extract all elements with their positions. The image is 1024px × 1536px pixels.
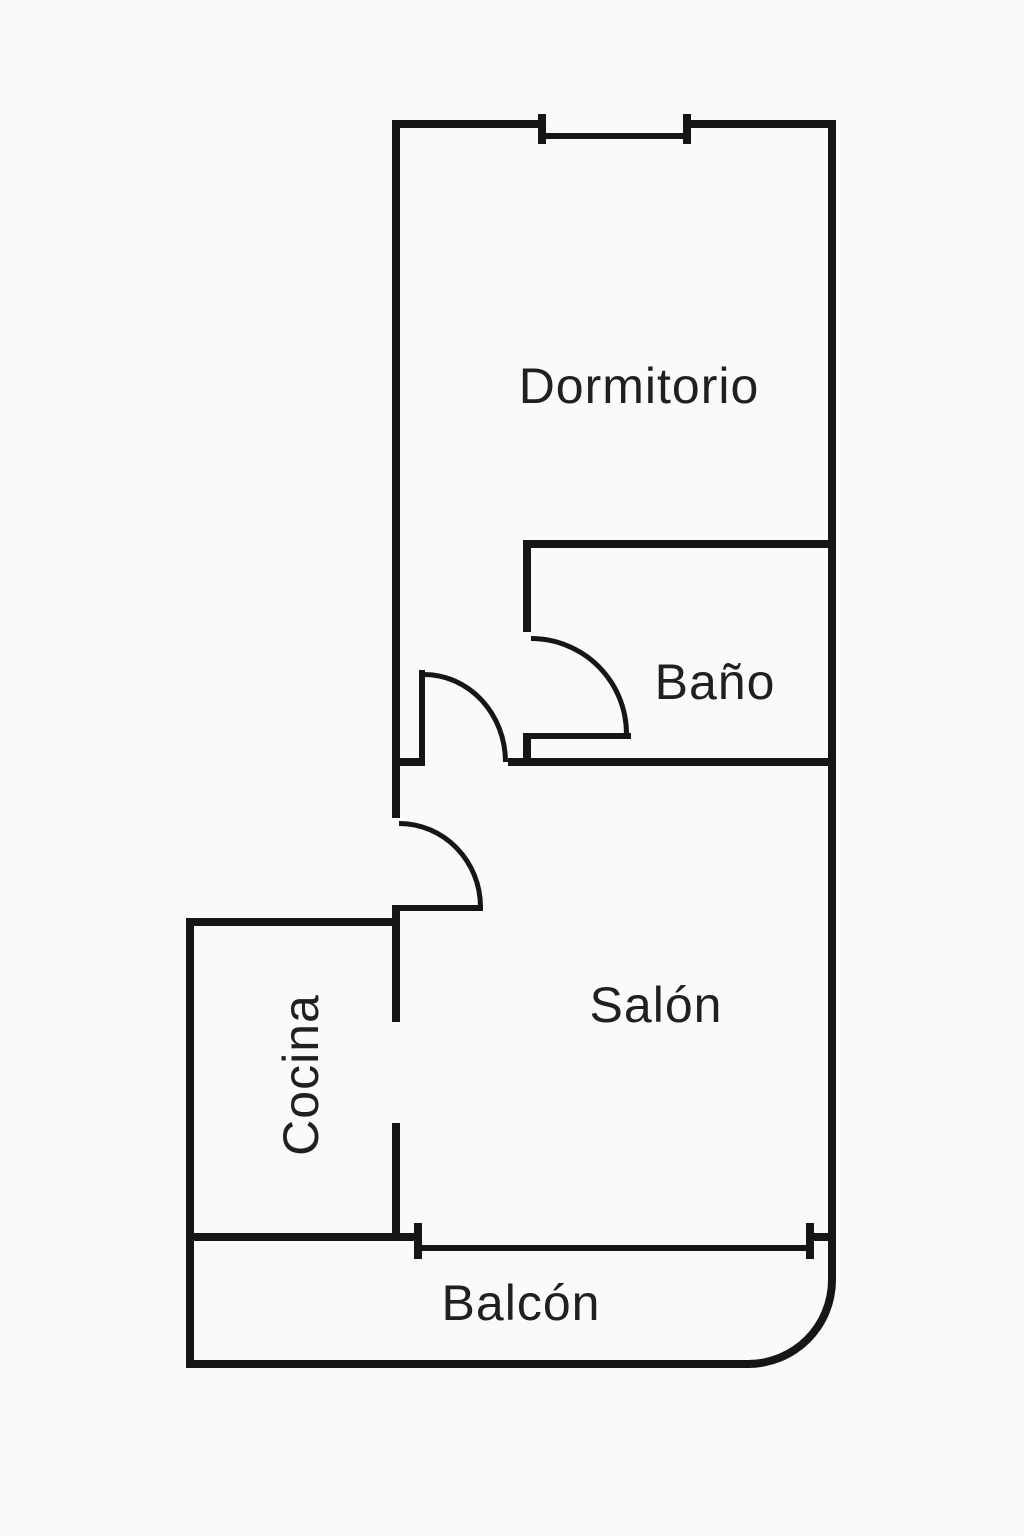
door-bano-arc [531, 636, 629, 734]
window-tick-left [538, 114, 546, 144]
window-tick-right [683, 114, 691, 144]
room-label-cocina: Cocina [276, 994, 326, 1156]
floor-plan: Dormitorio Baño Salón Cocina Balcón [0, 0, 1024, 1536]
door-salon-arc [399, 821, 483, 907]
wall-west-lower [392, 1123, 400, 1241]
room-label-balcon: Balcón [442, 1278, 601, 1328]
wall-cocina-top [186, 918, 400, 926]
wall-balcon-top-left [186, 1233, 417, 1241]
room-label-dormitorio: Dormitorio [519, 361, 760, 411]
wall-balcon-bottom [186, 1360, 750, 1368]
balcon-tick-right [806, 1223, 814, 1259]
wall-outer-west [186, 918, 194, 1368]
balcon-rail-line [421, 1245, 807, 1251]
wall-divider-left [392, 758, 419, 766]
wall-west-upper [392, 120, 400, 818]
room-label-salon: Salón [590, 980, 723, 1030]
wall-divider-right [508, 758, 836, 766]
wall-top-left-segment [392, 120, 541, 128]
room-label-bano: Baño [655, 657, 776, 707]
wall-balcon-top-right [813, 1233, 836, 1241]
wall-bano-top [523, 540, 836, 548]
wall-top-right-segment [690, 120, 836, 128]
wall-bano-west-stub [523, 733, 531, 766]
door-dormitorio-arc [424, 672, 508, 762]
balcon-tick-left [414, 1223, 422, 1259]
wall-corner-rounded [748, 1276, 836, 1368]
window-sill-line [546, 133, 685, 139]
wall-bano-west-upper [523, 540, 531, 632]
wall-east [828, 120, 836, 1278]
